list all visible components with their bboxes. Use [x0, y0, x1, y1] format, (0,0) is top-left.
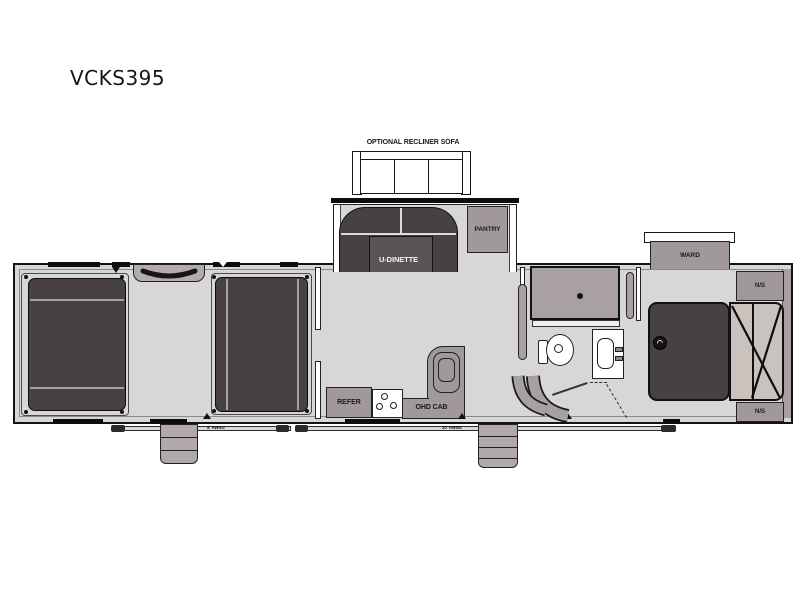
window: [345, 419, 400, 424]
u-dinette-label: U-DINETTE: [339, 256, 458, 264]
window: [280, 262, 298, 267]
wardrobe: WARD: [650, 241, 730, 269]
vent-marker: [219, 262, 227, 267]
bathroom-sink: [597, 338, 614, 369]
mattress-head: [729, 302, 784, 401]
dinette-table: [369, 236, 433, 272]
bathroom-pocket-door: [518, 284, 527, 360]
nightstand-bottom: N/S: [736, 402, 784, 422]
mount-dot: [24, 275, 28, 279]
vent-marker: [458, 413, 466, 419]
step-tread: [479, 436, 517, 437]
ohd-cab-label: OHD CAB: [400, 404, 463, 411]
booth-gap-line: [400, 208, 402, 234]
entry-steps-garage: [160, 424, 198, 464]
faucet-handle: [615, 347, 623, 352]
nightstand-bottom-label: N/S: [755, 409, 765, 415]
window: [48, 262, 100, 267]
mount-dot: [24, 410, 28, 414]
mount-dot: [305, 275, 309, 279]
awning-left-label: 8' AWNG: [196, 425, 235, 430]
optional-sofa-label: OPTIONAL RECLINER SOFA: [333, 139, 493, 146]
slide-wall-right: [509, 205, 516, 272]
garage-partition-wall-top: [315, 267, 321, 330]
pantry-cabinet: PANTRY: [467, 206, 508, 253]
awning-end-cap: [661, 425, 676, 432]
bed-section-line: [30, 299, 124, 301]
floorplan-canvas: VCKS395 OPTIONAL RECLINER SOFA U-DINETTE…: [0, 0, 800, 600]
bedroom-wall: [636, 267, 641, 321]
stove: [372, 389, 403, 418]
bed-section-line: [297, 279, 299, 410]
booth-gap-line: [341, 233, 456, 235]
bed-section-line: [30, 387, 124, 389]
sofa-seat: [360, 159, 463, 194]
garage-bed-right: [215, 277, 308, 412]
awning-end-cap: [295, 425, 308, 432]
step-tread: [479, 458, 517, 459]
burner: [376, 403, 383, 410]
window: [53, 419, 103, 424]
mount-dot: [120, 410, 124, 414]
garage-bed-left: [28, 278, 126, 411]
burner: [390, 402, 397, 409]
door-swing-line: [590, 382, 607, 383]
shower: [530, 266, 620, 320]
nightstand-top: N/S: [736, 271, 784, 301]
burner: [381, 393, 388, 400]
mount-dot: [305, 409, 309, 413]
ward-label: WARD: [680, 252, 700, 259]
mount-dot: [212, 409, 216, 413]
sofa-seat-divider: [394, 159, 395, 194]
vent-marker: [564, 413, 572, 419]
sofa-seat-divider: [428, 159, 429, 194]
entry-steps-main: [478, 424, 518, 468]
awning-end-cap: [276, 425, 289, 432]
pantry-label: PANTRY: [475, 226, 501, 233]
dinette-slide-roof-bar: [331, 198, 519, 203]
window: [663, 419, 680, 424]
garage-cabinet: [133, 264, 205, 282]
vent-marker: [203, 413, 211, 419]
vent-marker: [112, 267, 120, 273]
garage-partition-wall-bottom: [315, 361, 321, 419]
faucet-handle: [615, 356, 623, 361]
refer-label: REFER: [337, 399, 361, 406]
refrigerator: REFER: [326, 387, 372, 418]
step-tread: [479, 447, 517, 448]
shower-drain: [577, 293, 583, 299]
bedroom-pocket-door: [626, 272, 634, 319]
awning-right-label: 20' AWNG: [432, 425, 473, 430]
nightstand-top-label: N/S: [755, 283, 765, 289]
toilet-bowl-center: [554, 344, 563, 353]
step-tread: [161, 450, 197, 451]
model-title: VCKS395: [70, 66, 165, 90]
bed-section-line: [226, 279, 228, 410]
mount-dot: [212, 275, 216, 279]
awning-end-cap: [111, 425, 125, 432]
bed: [648, 302, 730, 401]
kitchen-sink-basin: [438, 358, 455, 382]
mattress-divider-line: [752, 304, 754, 399]
mount-dot: [120, 275, 124, 279]
step-tread: [161, 437, 197, 438]
shower-threshold: [532, 320, 620, 327]
